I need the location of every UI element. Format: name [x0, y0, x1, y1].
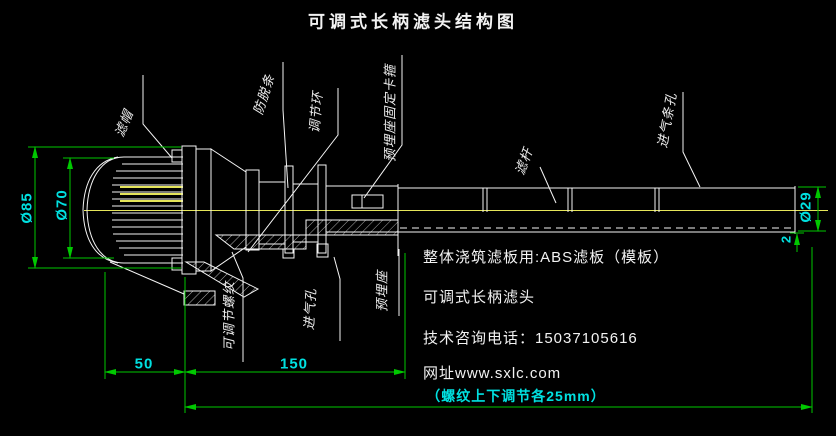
label-adjustable-thread: 可调节螺纹 — [219, 281, 238, 351]
filter-head-drawing — [83, 146, 398, 305]
note-abs-plate: 整体浇筑滤板用:ABS滤板（模板） — [423, 246, 669, 267]
label-air-hole: 进气孔 — [298, 288, 319, 331]
note-website: 网址www.sxlc.com — [423, 362, 561, 383]
drawing-linework — [0, 0, 836, 436]
cad-drawing-canvas: 可调式长柄滤头结构图 滤帽 防脱条 调节环 预埋座固定卡箍 滤杆 进气条孔 可调… — [0, 0, 836, 436]
dim-embed-length: 150 — [280, 356, 308, 373]
dim-wall-thickness: 2 — [779, 235, 794, 243]
dim-cap-length: 50 — [135, 356, 154, 373]
note-phone: 技术咨询电话：15037105616 — [423, 327, 638, 348]
label-embedded-seat: 预埋座 — [372, 270, 391, 312]
dim-flange-od: Ø85 — [19, 192, 36, 223]
drawing-title: 可调式长柄滤头结构图 — [308, 8, 518, 33]
label-adjusting-ring: 调节环 — [304, 90, 327, 134]
dim-cap-od: Ø70 — [54, 189, 71, 220]
dim-thread-note: （螺纹上下调节各25mm） — [426, 386, 605, 406]
label-embed-clamp: 预埋座固定卡箍 — [380, 64, 399, 162]
note-product-name: 可调式长柄滤头 — [423, 286, 535, 307]
dim-rod-od: Ø29 — [798, 191, 815, 222]
